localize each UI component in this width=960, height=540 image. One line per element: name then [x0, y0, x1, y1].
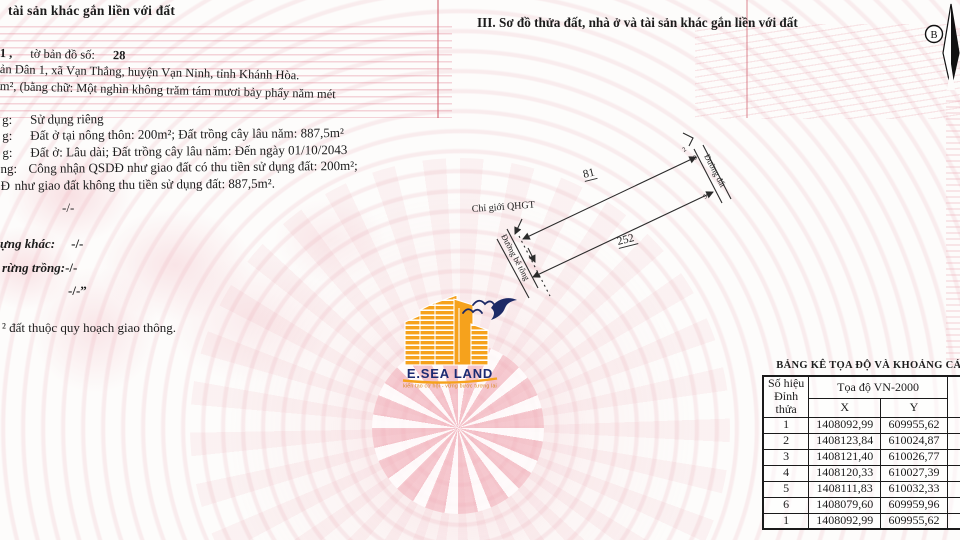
y-coordinate: 609955,62 [881, 513, 948, 529]
vertex-number: 5 [702, 193, 709, 201]
vertex-number: 3 [692, 154, 699, 162]
logo-tagline: kiến tạo cơ hội - vững bước tương lai [403, 384, 497, 390]
vertex-id: 2 [763, 433, 809, 449]
table-row: 4 1408120,33 610027,39 [763, 465, 960, 481]
logo-swoosh [403, 379, 497, 383]
parcel-top-edge [523, 157, 696, 239]
section-heading-fragment: tài sản khác gắn liền với đất [8, 3, 175, 19]
other-structures-line: ựng khác:-/- [0, 236, 83, 252]
other-structures-value: -/- [71, 236, 83, 251]
vertex-header-line2: Đỉnh thửa [774, 389, 798, 416]
table-row: 6 1408079,60 609959,96 [763, 497, 960, 513]
road-right-label: Đường đất [702, 152, 728, 189]
qhgt-boundary-dashed-line [519, 236, 550, 296]
use-line-text: Sử dụng riêng [30, 111, 104, 128]
vertex-number: 2 [681, 146, 688, 154]
guilloche-center-star [372, 342, 544, 514]
section-iii-heading: III. Sơ đồ thửa đất, nhà ở và tài sản kh… [477, 15, 798, 31]
y-coordinate: 609959,96 [881, 497, 948, 513]
coordinate-table-section: BẢNG KÊ TỌA ĐỘ VÀ KHOẢNG CÁCH Số hiệu Đỉ… [762, 360, 960, 530]
y-column-header: Y [881, 398, 948, 417]
qhgt-boundary-label: Chỉ giới QHGT [471, 200, 535, 215]
compass-circle [926, 26, 943, 43]
x-column-header: X [809, 398, 881, 417]
y-coordinate: 610024,87 [881, 433, 948, 449]
planning-note-line: ² đất thuộc quy hoạch giao thông. [2, 320, 176, 336]
vertex-id: 6 [763, 497, 809, 513]
vertex-id: 3 [763, 449, 809, 465]
label-underline [585, 178, 598, 181]
dirt-road-line [694, 149, 722, 203]
vertex-id: 5 [763, 481, 809, 497]
dirt-road-line [703, 145, 731, 199]
clipped-cell [947, 513, 960, 529]
table-row: 3 1408121,40 610026,77 [763, 449, 960, 465]
parcel-bottom-edge [533, 192, 713, 277]
land-use-block: g: Sử dụng riêng g: Đất ở tại nông thôn:… [0, 108, 441, 197]
boundary-pointer-arrow [528, 248, 535, 262]
other-structures-label: ựng khác: [0, 236, 55, 251]
use-line-prefix: Đ [1, 178, 11, 194]
north-compass-icon: B [924, 2, 960, 108]
planted-forest-label: rừng trồng: [2, 260, 65, 275]
concrete-road-line [497, 239, 529, 298]
compass-needle-fork [947, 64, 955, 90]
esealand-logo: E.SEA LAND kiến tạo cơ hội - vững bước t… [393, 286, 533, 390]
coordinate-table-title: BẢNG KÊ TỌA ĐỘ VÀ KHOẢNG CÁCH [762, 360, 960, 371]
fold-crease-left [437, 0, 439, 118]
use-line-text: Công nhận QSDĐ như giao đất có thu tiền … [28, 158, 357, 177]
bottom-edge-length-label: 252 [616, 232, 636, 248]
table-row: 5 1408111,83 610032,33 [763, 481, 960, 497]
x-coordinate: 1408092,99 [809, 513, 881, 529]
vertex-header-line1: Số hiệu [768, 376, 804, 390]
right-edge-texture [946, 100, 960, 365]
coord-group-header: Tọa độ VN-2000 [809, 376, 948, 398]
logo-birds-icon [463, 298, 517, 320]
vertex-id: 1 [763, 417, 809, 433]
guilloche-motif-ring [190, 158, 730, 540]
x-coordinate: 1408111,83 [809, 481, 881, 497]
x-coordinate: 1408121,40 [809, 449, 881, 465]
security-lines-top-right [695, 24, 960, 119]
y-coordinate: 609955,62 [881, 417, 948, 433]
vertex-id: 1 [763, 513, 809, 529]
qhgt-pointer-arrow [515, 219, 522, 234]
use-line-text: như giao đất không thu tiền sử dụng đất:… [15, 176, 275, 194]
x-coordinate: 1408120,33 [809, 465, 881, 481]
separator-mark-quoted: -/-” [68, 283, 87, 299]
map-sheet-line: 1 ,tờ bản đồ số:28 [0, 46, 126, 63]
map-sheet-number: 28 [113, 48, 126, 62]
clipped-cell [947, 465, 960, 481]
clipped-column-header: C [947, 376, 960, 417]
label-underline [619, 244, 638, 249]
compass-needle [943, 4, 959, 89]
concrete-road-line [507, 229, 538, 288]
use-line-text: Đất ở tại nông thôn: 200m²; Đất trồng câ… [30, 125, 344, 144]
y-coordinate: 610026,77 [881, 449, 948, 465]
parcel-number-fragment: 1 , [0, 46, 12, 60]
clipped-cell [947, 417, 960, 433]
y-coordinate: 610027,39 [881, 465, 948, 481]
vertex-id: 4 [763, 465, 809, 481]
scanned-land-certificate-page: tài sản khác gắn liền với đất 1 ,tờ bản … [0, 0, 960, 540]
compass-needle-dark-half [951, 4, 959, 89]
map-sheet-label: tờ bản đồ số: [30, 47, 95, 62]
corner-bracket-mark [683, 133, 693, 146]
table-row: 2 1408123,84 610024,87 [763, 433, 960, 449]
logo-buildings-icon [405, 295, 488, 365]
use-line-prefix: g: [2, 128, 12, 144]
planted-forest-line: rừng trồng:-/- [2, 260, 77, 276]
use-line-prefix: ng: [0, 161, 17, 177]
top-edge-length-label: 81 [582, 166, 596, 180]
road-left-label: Đường bê tông [499, 232, 532, 282]
logo-brand-text: E.SEA LAND [407, 366, 493, 381]
clipped-cell [947, 433, 960, 449]
y-coordinate: 610032,33 [881, 481, 948, 497]
use-line-prefix: g: [2, 145, 12, 161]
vertex-column-header: Số hiệu Đỉnh thửa [763, 376, 809, 417]
use-line-prefix: g: [2, 112, 12, 128]
parcel-diagram: Đường bê tông Đường đất 81 252 Chỉ giới … [455, 128, 765, 323]
x-coordinate: 1408123,84 [809, 433, 881, 449]
clipped-cell [947, 481, 960, 497]
table-row: 1 1408092,99 609955,62 [763, 417, 960, 433]
clipped-cell [947, 449, 960, 465]
x-coordinate: 1408092,99 [809, 417, 881, 433]
planted-forest-value: -/- [65, 260, 77, 275]
separator-mark: -/- [62, 200, 74, 216]
table-row: 1 1408092,99 609955,62 [763, 513, 960, 529]
compass-north-letter: B [930, 30, 937, 41]
clipped-cell [947, 497, 960, 513]
coordinate-table: Số hiệu Đỉnh thửa Tọa độ VN-2000 C X Y 1… [762, 375, 960, 530]
x-coordinate: 1408079,60 [809, 497, 881, 513]
